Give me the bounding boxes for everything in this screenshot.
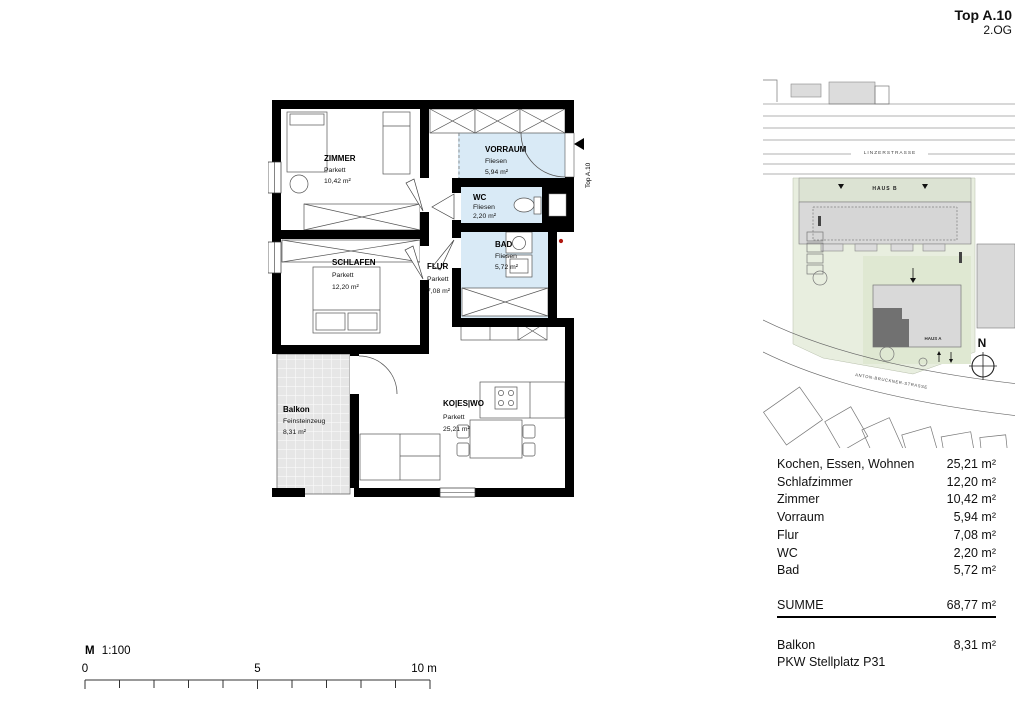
- summe-row: SUMME 68,77 m²: [777, 597, 996, 618]
- table-row: WC 2,20 m²: [777, 545, 996, 563]
- table-row: Zimmer 10,42 m²: [777, 491, 996, 509]
- table-row: Vorraum 5,94 m²: [777, 509, 996, 527]
- row-value: 10,42 m²: [947, 491, 996, 509]
- street-linzerstrasse: LINZERSTRASSE: [763, 104, 1015, 174]
- built-in-closets: [430, 109, 565, 133]
- svg-text:8,31 m²: 8,31 m²: [283, 429, 307, 436]
- table-row: Kochen, Essen, Wohnen 25,21 m²: [777, 456, 996, 474]
- summe-value: 68,77 m²: [947, 597, 996, 615]
- area-table: Kochen, Essen, Wohnen 25,21 m² Schlafzim…: [777, 456, 996, 672]
- svg-text:Fliesen: Fliesen: [495, 253, 517, 260]
- svg-text:Fliesen: Fliesen: [473, 204, 495, 211]
- svg-text:ZIMMER: ZIMMER: [324, 154, 356, 163]
- row-value: 7,08 m²: [954, 527, 996, 545]
- row-label: WC: [777, 545, 798, 563]
- table-row: Bad 5,72 m²: [777, 562, 996, 580]
- svg-text:Fliesen: Fliesen: [485, 158, 507, 165]
- svg-text:5,94 m²: 5,94 m²: [485, 169, 509, 176]
- neighbour-buildings-bottom: [764, 387, 1009, 448]
- svg-text:Feinsteinzeug: Feinsteinzeug: [283, 418, 326, 425]
- scale-tick-10: 10 m: [411, 663, 437, 675]
- svg-text:10,42 m²: 10,42 m²: [324, 178, 352, 185]
- row-value: 25,21 m²: [947, 456, 996, 474]
- entrance-unit-label: Top A.10: [585, 162, 592, 188]
- row-value: 8,31 m²: [954, 637, 996, 655]
- window: [268, 162, 281, 193]
- balkon-row: Balkon 8,31 m²: [777, 637, 996, 655]
- haus-b: HAUS B: [799, 178, 971, 251]
- row-label: Balkon: [777, 637, 815, 655]
- street-bottom-label: ANTON-BRUCKNER-STRASSE: [855, 372, 928, 390]
- bed: [383, 112, 410, 174]
- svg-text:Parkett: Parkett: [324, 167, 346, 174]
- scale-ruler: [85, 680, 430, 689]
- title-block: Top A.10 2.OG: [954, 8, 1012, 37]
- row-value: 5,94 m²: [954, 509, 996, 527]
- scale-tick-0: 0: [82, 663, 88, 675]
- table-row: Flur 7,08 m²: [777, 527, 996, 545]
- street-top-label: LINZERSTRASSE: [864, 150, 916, 156]
- red-marker-dot: [559, 239, 563, 243]
- side-table: [290, 175, 308, 193]
- scale-bar: M 1:100 0 5 10 m: [72, 640, 452, 695]
- haus-a-label: HAUS A: [924, 336, 942, 341]
- vorraum-floor: [458, 133, 565, 178]
- row-value: 12,20 m²: [947, 474, 996, 492]
- floorplan-drawing: Top A.10 ZIMMER Parkett 10,42 m² SCHLAFE…: [268, 98, 608, 502]
- svg-text:5,72 m²: 5,72 m²: [495, 264, 519, 271]
- row-value: 2,20 m²: [954, 545, 996, 563]
- neighbour-building-right: [977, 244, 1015, 328]
- entrance-arrow-icon: [574, 138, 584, 150]
- row-label: Vorraum: [777, 509, 824, 527]
- stellplatz-row: PKW Stellplatz P31: [777, 654, 996, 672]
- row-label: Kochen, Essen, Wohnen: [777, 456, 914, 474]
- window: [268, 242, 281, 273]
- shaft-niche: [549, 194, 566, 216]
- svg-text:Parkett: Parkett: [427, 276, 449, 283]
- bathtub: [462, 288, 548, 316]
- row-label: PKW Stellplatz P31: [777, 654, 885, 672]
- table-extras: Balkon 8,31 m² PKW Stellplatz P31: [777, 637, 996, 672]
- sofa: [360, 434, 440, 480]
- svg-text:Parkett: Parkett: [332, 272, 354, 279]
- svg-text:FLUR: FLUR: [427, 262, 449, 271]
- svg-text:2,20 m²: 2,20 m²: [473, 213, 497, 220]
- svg-text:M 1:100: M 1:100: [85, 645, 131, 657]
- window: [440, 488, 475, 497]
- table-row: Schlafzimmer 12,20 m²: [777, 474, 996, 492]
- row-label: Zimmer: [777, 491, 819, 509]
- north-label: N: [978, 336, 987, 350]
- scale-label-m: M: [85, 645, 95, 657]
- svg-text:BAD: BAD: [495, 240, 513, 249]
- neighbour-buildings-top: [763, 80, 889, 104]
- kitchen-counter: [480, 382, 565, 418]
- svg-text:Parkett: Parkett: [443, 414, 465, 421]
- flur-label: FLUR Parkett 7,08 m²: [427, 262, 451, 295]
- unit-title: Top A.10: [954, 8, 1012, 23]
- svg-text:25,21 m²: 25,21 m²: [443, 426, 471, 433]
- row-label: Bad: [777, 562, 799, 580]
- scale-tick-5: 5: [254, 663, 260, 675]
- floor-label: 2.OG: [954, 23, 1012, 37]
- svg-text:SCHLAFEN: SCHLAFEN: [332, 258, 376, 267]
- row-label: Flur: [777, 527, 799, 545]
- site-plan: LINZERSTRASSE HAUS B HAUS A: [763, 56, 1015, 448]
- wardrobe: [304, 204, 420, 230]
- haus-b-label: HAUS B: [872, 186, 897, 192]
- row-label: Schlafzimmer: [777, 474, 853, 492]
- svg-text:Balkon: Balkon: [283, 405, 310, 414]
- svg-text:WC: WC: [473, 193, 487, 202]
- svg-text:KO|ES|WO: KO|ES|WO: [443, 399, 484, 408]
- summe-label: SUMME: [777, 597, 824, 615]
- row-value: 5,72 m²: [954, 562, 996, 580]
- svg-text:VORRAUM: VORRAUM: [485, 145, 527, 154]
- scale-label-ratio: 1:100: [102, 645, 131, 657]
- svg-text:12,20 m²: 12,20 m²: [332, 284, 360, 291]
- svg-text:7,08 m²: 7,08 m²: [427, 288, 451, 295]
